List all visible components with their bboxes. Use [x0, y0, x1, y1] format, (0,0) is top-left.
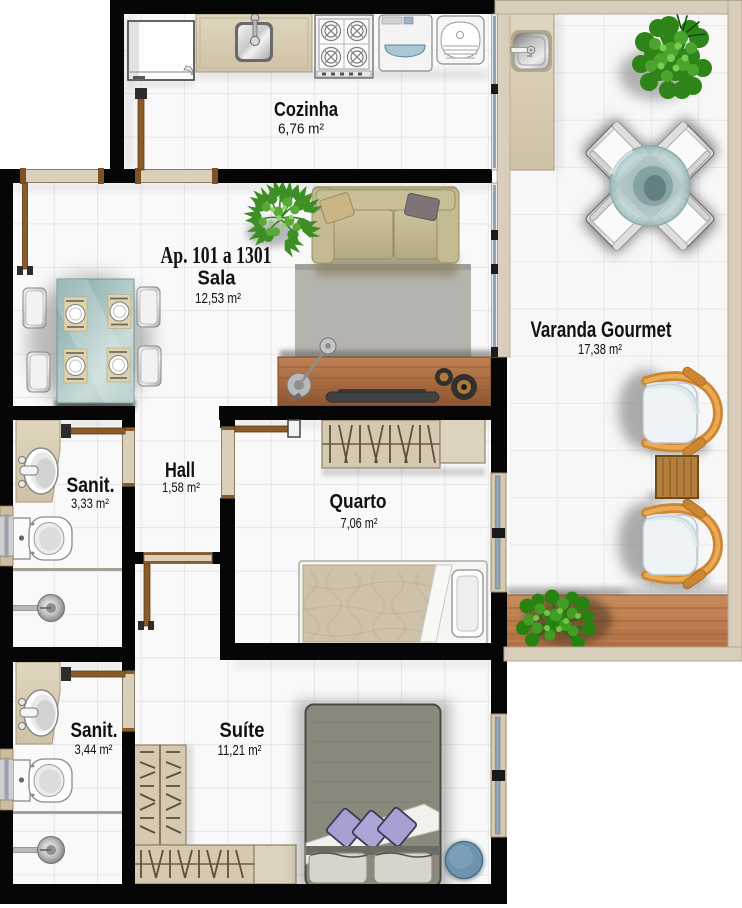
svg-text:Varanda Gourmet: Varanda Gourmet [531, 317, 673, 342]
svg-text:Quarto: Quarto [330, 491, 387, 513]
svg-text:1,58 m²: 1,58 m² [162, 479, 200, 495]
svg-text:11,21 m²: 11,21 m² [218, 743, 262, 759]
svg-text:17,38 m²: 17,38 m² [578, 342, 622, 358]
svg-text:3,33 m²: 3,33 m² [71, 495, 109, 511]
svg-text:Ap. 101 a 1301: Ap. 101 a 1301 [161, 243, 272, 269]
svg-text:Suíte: Suíte [220, 719, 265, 742]
svg-text:12,53 m²: 12,53 m² [195, 291, 241, 307]
svg-text:Cozinha: Cozinha [274, 99, 339, 121]
svg-text:6,76 m²: 6,76 m² [278, 122, 324, 138]
svg-text:3,44 m²: 3,44 m² [75, 741, 113, 757]
svg-text:Sanit.: Sanit. [67, 474, 115, 497]
svg-text:Sanit.: Sanit. [71, 719, 118, 742]
svg-text:7,06 m²: 7,06 m² [341, 516, 378, 532]
svg-text:Sala: Sala [198, 268, 237, 290]
